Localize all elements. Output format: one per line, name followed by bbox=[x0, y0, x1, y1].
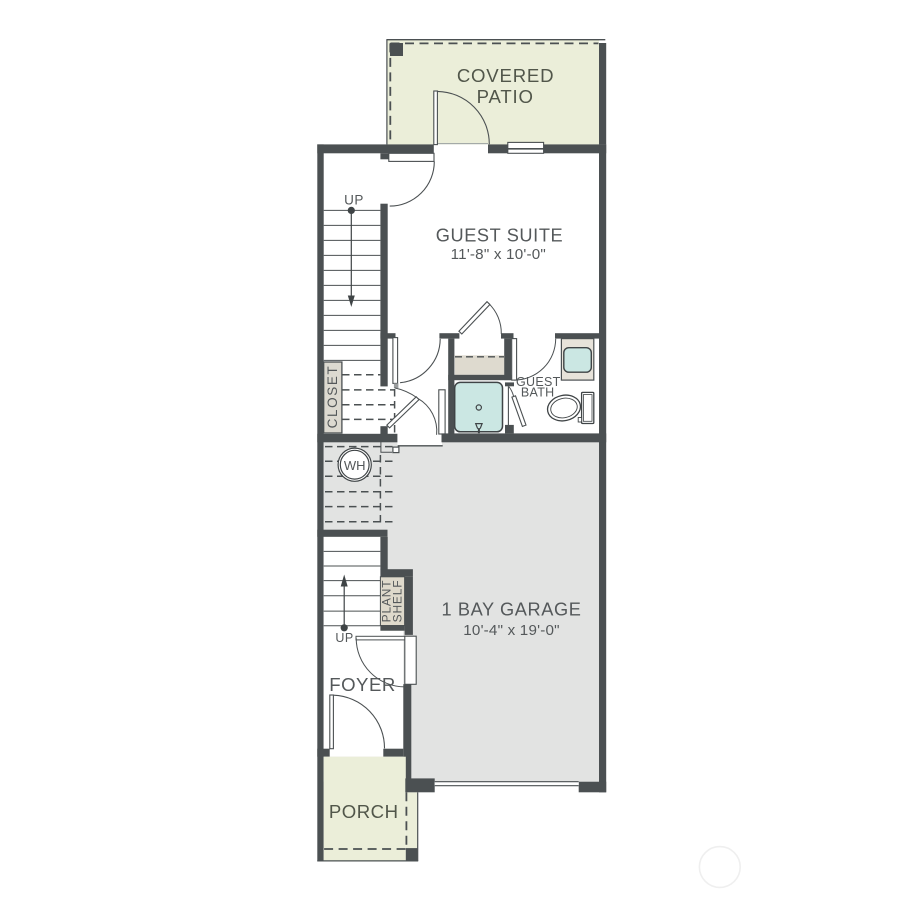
svg-text:PATIO: PATIO bbox=[477, 86, 534, 107]
svg-text:FOYER: FOYER bbox=[329, 674, 396, 695]
svg-text:COVERED: COVERED bbox=[457, 65, 555, 86]
svg-text:11'-8" x 10'-0": 11'-8" x 10'-0" bbox=[451, 246, 546, 263]
svg-text:BATH: BATH bbox=[521, 386, 555, 400]
svg-text:CLOSET: CLOSET bbox=[325, 365, 340, 429]
svg-text:WH: WH bbox=[344, 458, 366, 473]
svg-text:PORCH: PORCH bbox=[329, 801, 399, 822]
svg-text:1 BAY GARAGE: 1 BAY GARAGE bbox=[442, 599, 582, 619]
svg-text:SHELF: SHELF bbox=[391, 580, 405, 623]
svg-text:UP: UP bbox=[335, 631, 353, 645]
svg-text:GUEST SUITE: GUEST SUITE bbox=[436, 226, 564, 246]
svg-text:UP: UP bbox=[344, 193, 364, 208]
svg-text:10'-4" x 19'-0": 10'-4" x 19'-0" bbox=[463, 622, 559, 639]
